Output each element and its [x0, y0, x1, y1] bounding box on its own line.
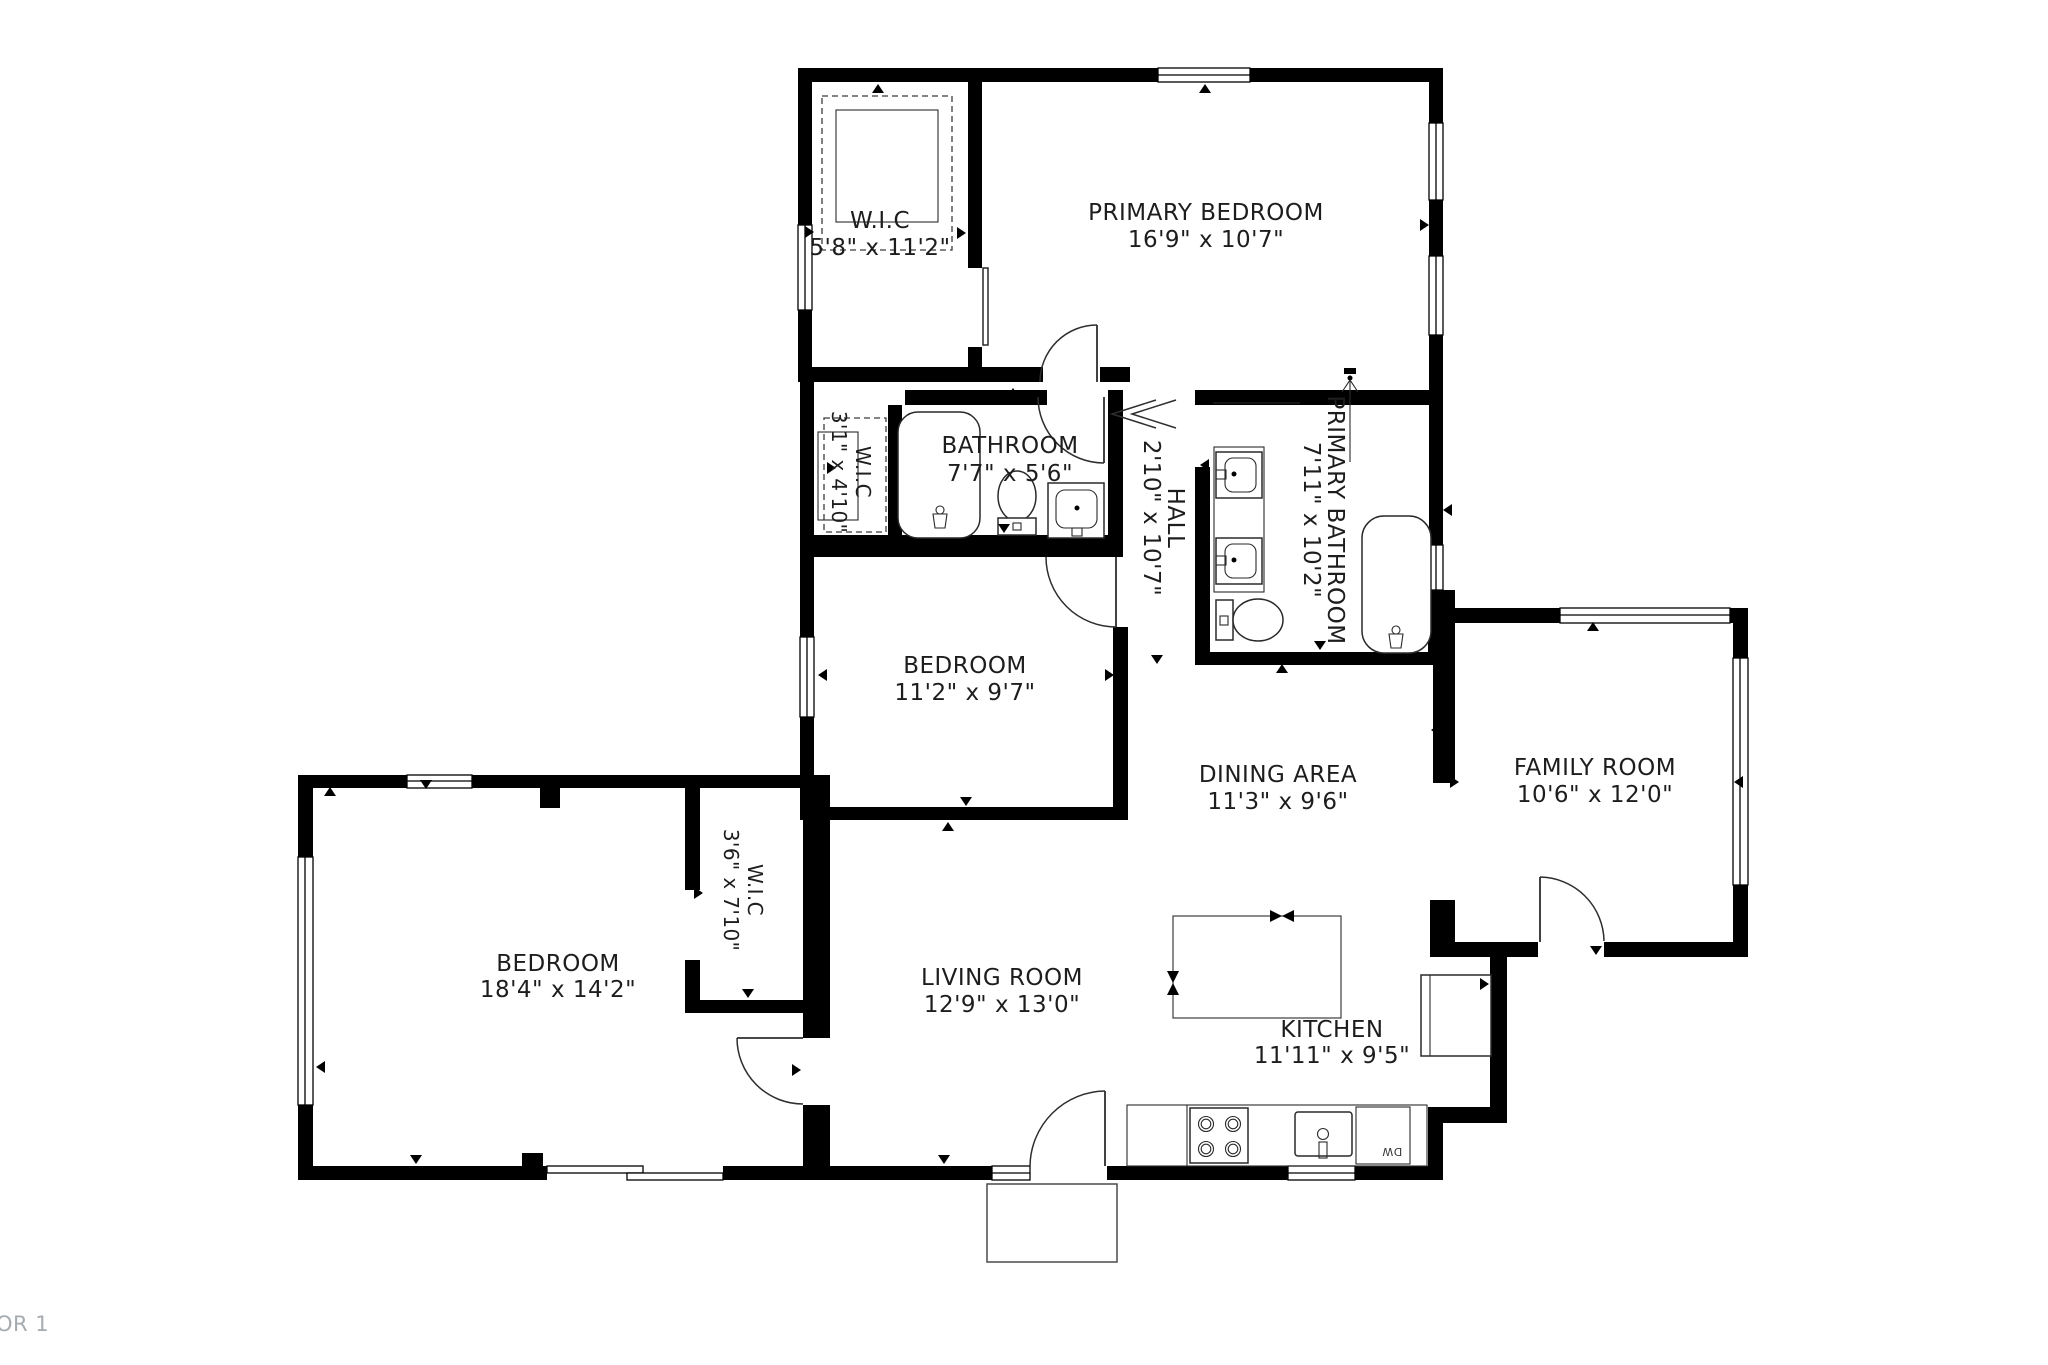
door-bedroom-middle	[1046, 557, 1116, 627]
dimension-marker-icon	[1105, 669, 1114, 681]
room-label: W.I.C	[850, 208, 910, 234]
dimension-marker-icon	[872, 84, 884, 93]
room-label: LIVING ROOM	[921, 965, 1083, 991]
dimension-marker-icon	[942, 822, 954, 831]
dimension-marker-icon	[957, 227, 966, 239]
room-label: PRIMARY BATHROOM	[1322, 395, 1348, 644]
dimension-marker-icon	[938, 1155, 950, 1164]
room-dims: 16'9" x 10'7"	[1128, 227, 1284, 253]
window	[407, 775, 472, 788]
room-dims: 3'1" x 4'10"	[827, 411, 851, 533]
door-primary-bedroom	[1040, 325, 1097, 382]
dimension-marker-icon	[410, 1155, 422, 1164]
room-dims: 11'11" x 9'5"	[1254, 1043, 1410, 1069]
door-entry	[1030, 1091, 1105, 1166]
floorplan-canvas: DW W.I.C 5'8" x 11'2" PRIMARY BEDROOM 16…	[0, 0, 2048, 1365]
window	[1429, 123, 1443, 200]
dimension-marker-icon	[1590, 946, 1602, 955]
room-label: KITCHEN	[1280, 1017, 1383, 1043]
room-dims: 3'6" x 7'10"	[719, 829, 743, 951]
stove-icon	[1190, 1108, 1248, 1163]
window	[1288, 1166, 1355, 1180]
dishwasher-icon: DW	[1356, 1107, 1410, 1164]
dimension-marker-icon	[792, 1064, 801, 1076]
room-dims: 2'10" x 10'7"	[1138, 440, 1164, 596]
room-dims: 11'3" x 9'6"	[1207, 789, 1348, 815]
window	[1429, 256, 1443, 335]
dimension-marker-icon	[324, 787, 336, 796]
dishwasher-label: DW	[1382, 1145, 1402, 1158]
room-label: DINING AREA	[1199, 762, 1357, 788]
dimension-marker-icon	[1199, 84, 1211, 93]
dimension-marker-icon	[960, 797, 972, 806]
window	[1158, 68, 1250, 82]
room-label: BEDROOM	[903, 653, 1027, 679]
room-dims: 7'7" x 5'6"	[947, 461, 1073, 487]
kitchen-sink-icon	[1295, 1112, 1352, 1158]
window	[298, 857, 313, 1105]
room-label: BATHROOM	[941, 433, 1078, 459]
door-family-room	[1540, 877, 1604, 942]
dimension-marker-icon	[742, 989, 754, 998]
dimension-marker-icon	[818, 669, 827, 681]
floor-number-label: OR 1	[0, 1312, 49, 1336]
sink-vanity-icon	[1048, 483, 1104, 538]
dimension-marker-icon	[316, 1061, 325, 1073]
room-label: FAMILY ROOM	[1514, 755, 1676, 781]
room-dims: 11'2" x 9'7"	[894, 680, 1035, 706]
room-dims: 5'8" x 11'2"	[809, 235, 950, 261]
dimension-marker-icon	[1151, 655, 1163, 664]
room-dims: 18'4" x 14'2"	[480, 977, 636, 1003]
kitchen-island	[1167, 910, 1341, 1018]
room-dims: 10'6" x 12'0"	[1517, 782, 1673, 808]
room-label: PRIMARY BEDROOM	[1088, 200, 1324, 226]
room-label: W.I.C	[851, 446, 875, 498]
porch	[987, 1184, 1117, 1262]
room-dims: 12'9" x 13'0"	[924, 992, 1080, 1018]
window	[800, 637, 814, 717]
window	[1560, 608, 1730, 623]
toilet-icon	[1216, 599, 1283, 641]
room-label: HALL	[1162, 488, 1188, 549]
room-label: W.I.C	[743, 864, 767, 916]
dimension-marker-icon	[1420, 219, 1429, 231]
sliding-door	[547, 1166, 723, 1180]
room-label: BEDROOM	[496, 951, 620, 977]
window	[992, 1166, 1030, 1180]
room-dims: 7'11" x 10'2"	[1298, 442, 1324, 598]
bathtub-icon	[1362, 516, 1431, 653]
floorplan-page: DW W.I.C 5'8" x 11'2" PRIMARY BEDROOM 16…	[0, 0, 2048, 1365]
dimension-marker-icon	[1276, 664, 1288, 673]
pocket-door-wic	[983, 268, 988, 345]
double-vanity-icon	[1214, 447, 1264, 592]
window	[1733, 658, 1748, 885]
dimension-marker-icon	[1443, 504, 1452, 516]
room-labels: W.I.C 5'8" x 11'2" PRIMARY BEDROOM 16'9"…	[480, 200, 1676, 1069]
